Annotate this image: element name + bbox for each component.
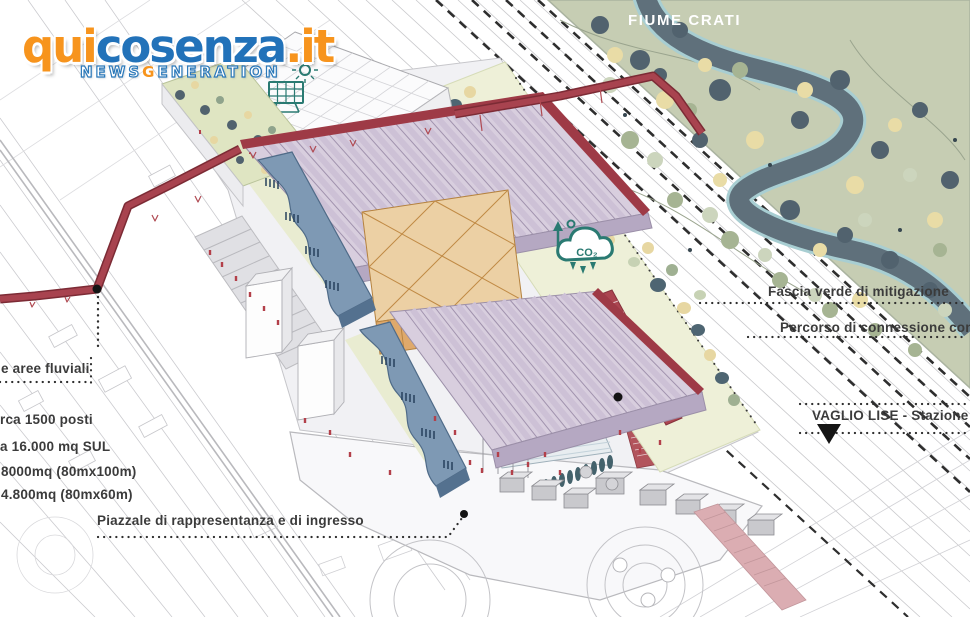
- station-label: VAGLIO LISE - Stazione FS: [812, 408, 970, 423]
- plaza-label: Piazzale di rappresentanza e di ingresso: [97, 513, 364, 528]
- left-note-area1: 8000mq (80mx100m): [1, 464, 136, 479]
- masterplan-illustration: CO₂ FIUME CRATI Fascia verde di mitigazi…: [0, 0, 970, 617]
- logo-it: .it: [285, 20, 333, 73]
- left-note-area2: 4.800mq (80mx60m): [1, 487, 133, 502]
- river-label: FIUME CRATI: [628, 12, 741, 29]
- left-note-sul: a 16.000 mq SUL: [0, 439, 110, 454]
- connection-path-label: Percorso di connessione con la s: [780, 320, 970, 335]
- left-note-parking: rca 1500 posti: [0, 412, 93, 427]
- logo-tagline-g: G: [142, 63, 157, 81]
- watermark-logo: quicosenza.it NEWSGENERATION: [22, 24, 333, 80]
- logo-tagline-news: NEWS: [80, 63, 142, 81]
- green-buffer-label: Fascia verde di mitigazione: [768, 284, 949, 299]
- left-note-river-areas: e aree fluviali: [1, 361, 90, 376]
- co2-label: CO₂: [576, 247, 598, 259]
- logo-tagline-rest: ENERATION: [157, 63, 280, 81]
